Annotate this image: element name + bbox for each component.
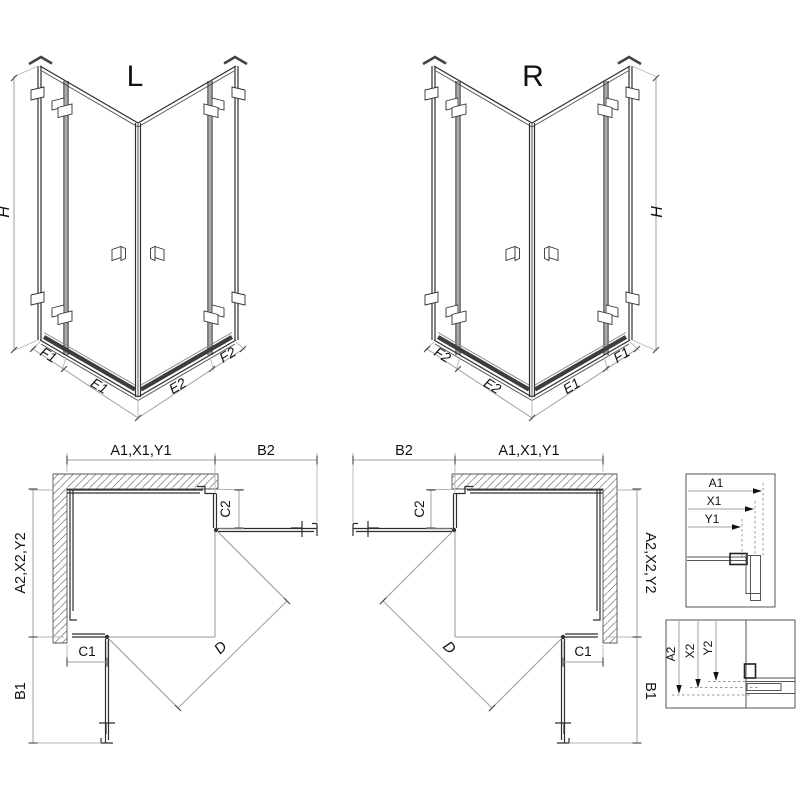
dim-label-c1: C1 (574, 644, 591, 659)
hinge-plate (204, 305, 224, 325)
detail-label-a2: A2 (664, 646, 678, 661)
dim-label-a2x2y2: A2,X2,Y2 (642, 532, 658, 593)
dim-label-d: D (211, 638, 231, 658)
detail-label-a1: A1 (709, 476, 724, 490)
dim-label-e1: E1 (88, 374, 111, 397)
wall-bracket (626, 292, 639, 305)
wall-bracket (232, 292, 245, 305)
wall-bracket (232, 87, 245, 100)
dim-label-h: H (0, 206, 13, 218)
dim-label-b1: B1 (13, 682, 29, 700)
iso-view-right: R H F2 E2 E1 F1 (423, 57, 666, 421)
detail-label-y1: Y1 (705, 512, 720, 526)
iso-right-label: R (522, 60, 544, 93)
wall-hatch (452, 474, 617, 643)
dim-label-e1: E1 (560, 374, 583, 397)
detail-width-box: A1 X1 Y1 (686, 474, 775, 607)
wall-bracket (31, 87, 44, 100)
dim-label-f2: F2 (431, 344, 453, 366)
dim-label-c1: C1 (78, 644, 95, 659)
dim-label-b1: B1 (642, 682, 658, 700)
plan-view-right: D A1,X1,Y1 B2 C2 A2,X2,Y2 B1 C1 (353, 443, 658, 743)
shower-enclosure-technical-drawing: L H F1 E1 E2 F2 R (0, 0, 800, 800)
door-knob (545, 247, 559, 261)
detail-label-x1: X1 (707, 494, 722, 508)
dim-label-c2: C2 (412, 500, 427, 517)
detail-label-y2: Y2 (701, 640, 715, 655)
dim-label-b2: B2 (257, 443, 275, 459)
dim-label-f1: F1 (37, 344, 59, 366)
dim-label-b2: B2 (395, 443, 413, 459)
wall-profile-cap (618, 57, 641, 64)
detail-label-x2: X2 (683, 643, 697, 658)
door-pivot (561, 635, 565, 639)
door-pivot (105, 635, 109, 639)
dim-label-c2: C2 (218, 500, 233, 517)
dim-label-f2: F2 (216, 344, 238, 366)
hinge-plate (598, 98, 618, 118)
dim-label-a1x1y1: A1,X1,Y1 (498, 443, 559, 459)
door-knob (112, 247, 126, 261)
door-knob (506, 247, 520, 261)
hinge-plate (52, 98, 72, 118)
wall-profile-cap (423, 57, 446, 64)
wall-bracket (425, 292, 438, 305)
door-pivot (214, 528, 218, 532)
diagram-canvas: L H F1 E1 E2 F2 R (0, 0, 800, 800)
dim-label-h: H (649, 206, 666, 218)
door-knob (151, 247, 165, 261)
dim-label-e2: E2 (481, 374, 504, 397)
wall-bracket (31, 292, 44, 305)
hinge-plate (446, 305, 466, 325)
wall-profile-cap (224, 57, 247, 64)
wall-bracket (425, 87, 438, 100)
door-pivot (452, 528, 456, 532)
wall-bracket (626, 87, 639, 100)
hinge-plate (598, 305, 618, 325)
dim-label-f1: F1 (610, 344, 632, 366)
iso-view-left: L H F1 E1 E2 F2 (0, 57, 247, 421)
wall-hatch (53, 474, 218, 643)
hinge-plate (52, 305, 72, 325)
hinge-plate (446, 98, 466, 118)
plan-view-left: D A1,X1,Y1 B2 C2 A2,X2,Y2 B1 C1 (13, 443, 317, 743)
detail-depth-box: A2 X2 Y2 (664, 620, 795, 708)
dim-label-a1x1y1: A1,X1,Y1 (110, 443, 171, 459)
dim-label-d: D (439, 638, 459, 658)
dim-label-a2x2y2: A2,X2,Y2 (13, 532, 29, 593)
iso-left-label: L (127, 60, 144, 93)
dim-label-e2: E2 (166, 374, 189, 397)
wall-profile-cap (29, 57, 52, 64)
hinge-plate (204, 98, 224, 118)
